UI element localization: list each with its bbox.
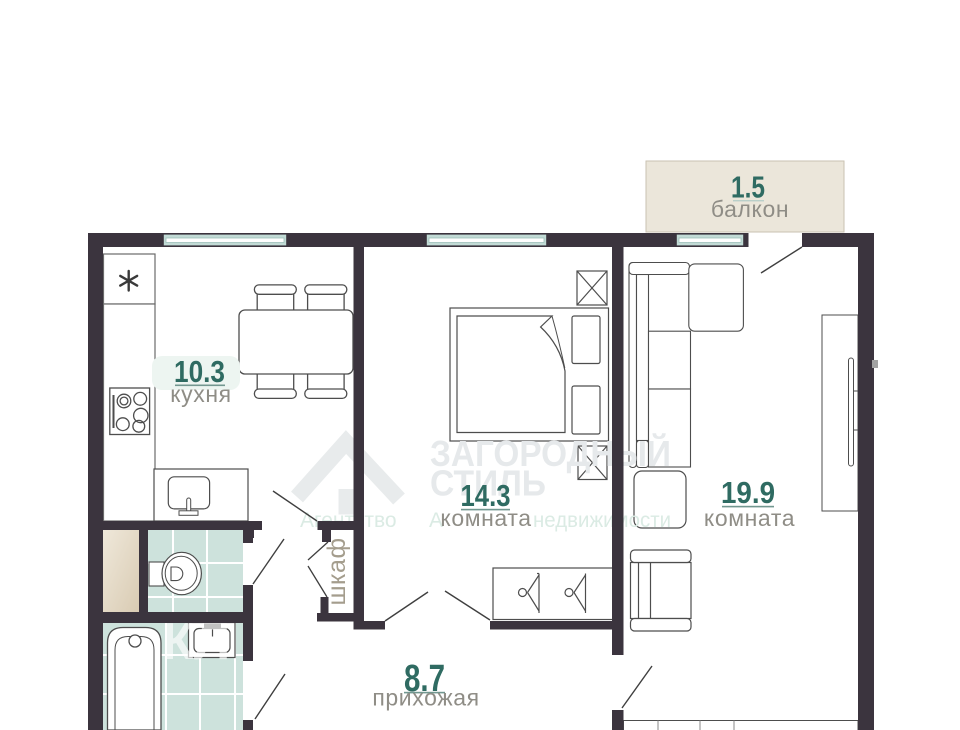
svg-text:балкон: балкон xyxy=(711,196,789,222)
svg-text:прихожая: прихожая xyxy=(372,685,479,711)
svg-text:шкаф: шкаф xyxy=(323,537,351,605)
svg-text:комната: комната xyxy=(704,505,795,531)
svg-text:недвижимости: недвижимости xyxy=(533,509,671,532)
svg-text:кухня: кухня xyxy=(170,381,231,407)
svg-text:комната: комната xyxy=(440,505,531,531)
